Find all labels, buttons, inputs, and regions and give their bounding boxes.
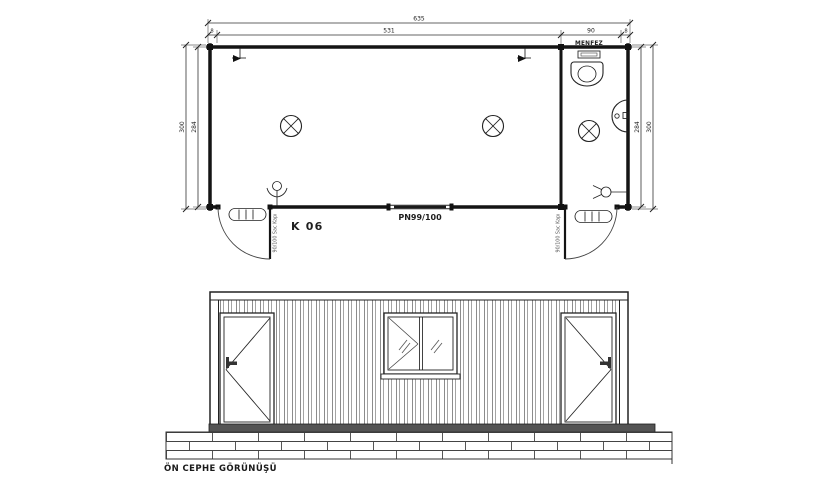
coat-hook-icon	[267, 182, 287, 207]
plan-door-right: 90/100 Sac Kapı	[556, 207, 618, 259]
dim-bathroom: 90	[587, 28, 595, 35]
sink-icon	[612, 100, 628, 132]
ceiling-light-icon	[281, 116, 302, 137]
dimension-depth-left: 300 284	[179, 42, 207, 212]
vent-label: MENFEZ	[575, 41, 603, 47]
ceiling-light-icon	[483, 116, 504, 137]
dimension-depth-right: 284 300	[632, 42, 658, 212]
elevation-door-right	[561, 313, 616, 426]
pendant-lamp-icon	[232, 48, 246, 62]
front-elevation: ÖN CEPHE GÖRÜNÜŞÜ	[164, 292, 672, 474]
floor-plan: 635 8 531 90 8	[179, 16, 658, 260]
toilet-icon	[571, 62, 603, 86]
plan-window: PN99/100	[387, 204, 454, 223]
brick-foundation	[166, 432, 672, 464]
radiator-icon	[229, 209, 266, 221]
left-door-label: 90/100 Sac Kapı	[273, 214, 279, 253]
walls	[207, 44, 631, 210]
room-code-label: K 06	[291, 220, 323, 233]
base-beam	[209, 424, 655, 432]
elevation-window	[381, 313, 460, 379]
ceiling-light-icon	[579, 121, 600, 142]
cad-drawing: 635 8 531 90 8	[0, 0, 834, 495]
dim-wall-left: 8	[210, 29, 213, 35]
vent-grille-icon: MENFEZ	[575, 41, 603, 58]
dim-depth-inner-left: 284	[191, 121, 198, 133]
dim-total: 635	[413, 16, 425, 23]
dimension-segments: 8 531 90 8	[205, 28, 633, 46]
plan-door-left: 90/100 Sac Kapı	[218, 207, 279, 259]
dim-wall-right: 8	[624, 29, 627, 35]
shower-mixer-icon	[593, 186, 628, 199]
drawing-sheet: 635 8 531 90 8	[0, 0, 834, 495]
dim-depth-inner-right: 284	[634, 121, 641, 133]
pendant-lamp-icon	[517, 48, 531, 62]
elevation-door-left	[220, 313, 274, 426]
window-code-label: PN99/100	[398, 213, 442, 222]
elevation-title: ÖN CEPHE GÖRÜNÜŞÜ	[164, 463, 277, 474]
dim-depth-outer-right: 300	[646, 121, 653, 133]
radiator-icon	[575, 211, 612, 223]
dimension-total-width: 635	[205, 16, 633, 44]
dim-depth-outer-left: 300	[179, 121, 186, 133]
right-door-label: 90/100 Sac Kapı	[556, 214, 562, 253]
dim-main-room: 531	[383, 28, 395, 35]
window-sill	[381, 374, 460, 379]
